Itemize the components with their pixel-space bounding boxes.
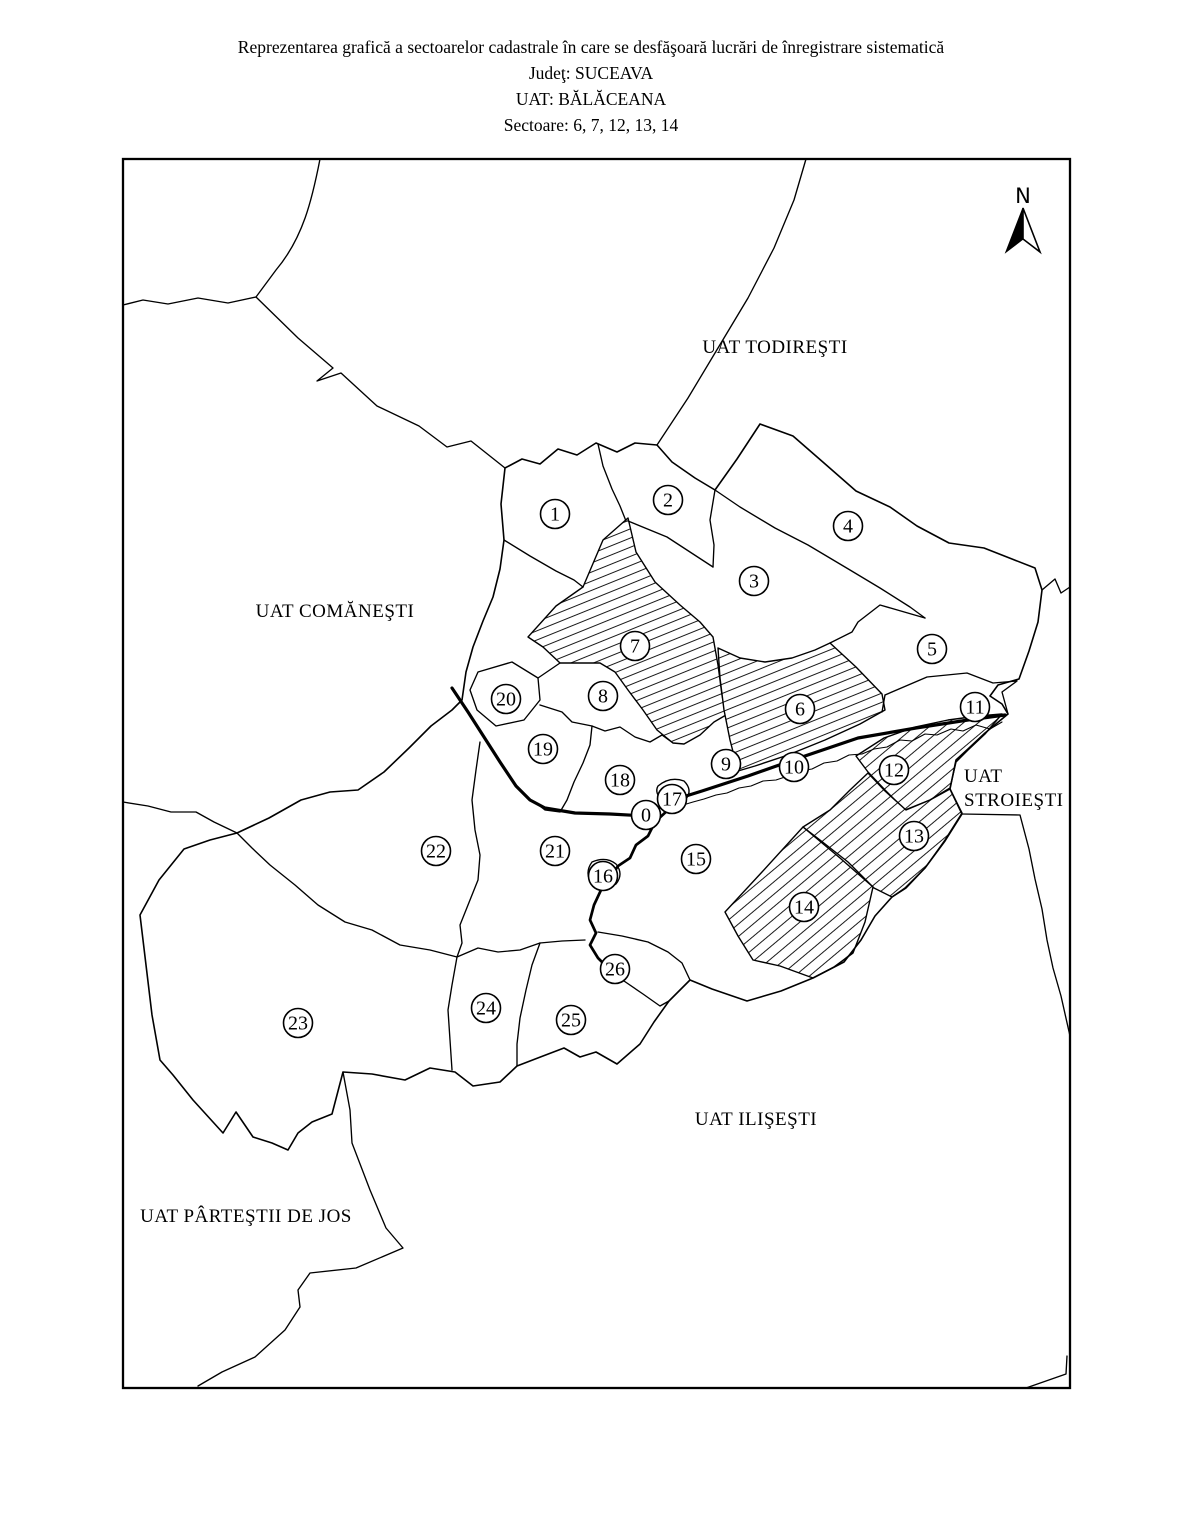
sector-marker-12: 12: [880, 756, 909, 785]
sector-number-21: 21: [545, 841, 565, 863]
sector-marker-25: 25: [557, 1006, 586, 1035]
uat-label-stroiesti-line1: UAT: [964, 766, 1002, 787]
sector-number-3: 3: [749, 571, 759, 593]
sector-number-9: 9: [721, 754, 731, 776]
boundary-right-exit: [1042, 579, 1070, 593]
sector-number-20: 20: [496, 689, 516, 711]
sector-marker-8: 8: [589, 682, 618, 711]
boundary-stroiesti-ilisesti: [962, 814, 1070, 1036]
sector-number-5: 5: [927, 639, 937, 661]
boundary-1-south: [504, 540, 583, 587]
sector-number-18: 18: [610, 770, 630, 792]
sector-number-26: 26: [605, 959, 625, 981]
sector-number-2: 2: [663, 490, 673, 512]
sector-number-10: 10: [784, 757, 804, 779]
sector-marker-2: 2: [654, 486, 683, 515]
boundary-top-northeast: [657, 159, 806, 445]
sector-marker-23: 23: [284, 1009, 313, 1038]
sector-marker-21: 21: [541, 837, 570, 866]
uat-label-comanesti: UAT COMĂNEŞTI: [256, 601, 415, 622]
sector-number-0: 0: [641, 805, 651, 827]
sector-number-22: 22: [426, 841, 446, 863]
map-canvas: N UAT TODIREŞTIUAT COMĂNEŞTIUATSTROIEŞTI…: [0, 0, 1182, 1520]
sector-number-7: 7: [630, 636, 640, 658]
sector-number-25: 25: [561, 1010, 581, 1032]
boundary-top-left: [256, 159, 320, 297]
boundary-24-25: [517, 943, 540, 1066]
sector-marker-17: 17: [658, 785, 687, 814]
sector-number-17: 17: [662, 789, 682, 811]
boundary-5-south: [885, 673, 1017, 714]
sector-number-1: 1: [550, 504, 560, 526]
sector-number-12: 12: [884, 760, 904, 782]
boundary-1-2: [598, 444, 626, 521]
sector-number-14: 14: [794, 897, 814, 919]
uat-label-ilisesti: UAT ILIŞEŞTI: [695, 1109, 817, 1130]
sector-marker-3: 3: [740, 567, 769, 596]
sector-marker-24: 24: [472, 994, 501, 1023]
north-arrow: N: [1006, 184, 1040, 252]
sector-number-15: 15: [686, 849, 706, 871]
sector-marker-26: 26: [601, 955, 630, 984]
sector-marker-11: 11: [961, 693, 990, 722]
sector-number-19: 19: [533, 739, 553, 761]
boundary-partestii-ilisesti: [198, 1072, 403, 1386]
sector-number-24: 24: [476, 998, 496, 1020]
uat-label-stroiesti-line2: STROIEŞTI: [964, 790, 1064, 811]
sector-number-23: 23: [288, 1013, 308, 1035]
sector-number-16: 16: [593, 866, 613, 888]
sector-number-13: 13: [904, 826, 924, 848]
north-label: N: [1015, 184, 1031, 208]
north-arrow-left-half: [1006, 208, 1023, 252]
sector-marker-5: 5: [918, 635, 947, 664]
boundary-left-lower: [123, 802, 237, 833]
boundary-left-upper: [123, 297, 256, 305]
sector-marker-4: 4: [834, 512, 863, 541]
boundary-21-22-23-24: [448, 742, 480, 1070]
boundary-2-3: [710, 490, 715, 567]
uat-label-todiresti: UAT TODIREŞTI: [702, 337, 847, 358]
sector-number-11: 11: [965, 697, 984, 719]
sector-marker-1: 1: [541, 500, 570, 529]
boundary-20-8: [538, 663, 560, 678]
boundary-comanesti-todiresti: [256, 297, 505, 468]
north-arrow-right-half: [1023, 208, 1040, 252]
cadastral-map-page: Reprezentarea grafică a sectoarelor cada…: [0, 0, 1182, 1520]
sector-marker-22: 22: [422, 837, 451, 866]
sector-number-6: 6: [795, 699, 805, 721]
sector-marker-15: 15: [682, 845, 711, 874]
boundary-3-5: [830, 605, 925, 643]
boundary-bottom-right-wedge: [1026, 1356, 1067, 1388]
boundary-21-24: [457, 940, 585, 957]
sector-marker-14: 14: [790, 893, 819, 922]
sector-marker-0: 0: [632, 801, 661, 830]
sector-marker-18: 18: [606, 766, 635, 795]
sector-marker-16: 16: [589, 862, 618, 891]
sector-marker-10: 10: [780, 753, 809, 782]
uat-label-partestii-de-jos: UAT PÂRTEŞTII DE JOS: [140, 1205, 352, 1227]
sector-marker-7: 7: [621, 632, 650, 661]
sector-number-8: 8: [598, 686, 608, 708]
sector-marker-19: 19: [529, 735, 558, 764]
sector-marker-9: 9: [712, 750, 741, 779]
sector-marker-6: 6: [786, 695, 815, 724]
river-boundary-south: [590, 810, 668, 975]
sector-marker-20: 20: [492, 685, 521, 714]
sector-number-4: 4: [843, 516, 853, 538]
sector-marker-13: 13: [900, 822, 929, 851]
